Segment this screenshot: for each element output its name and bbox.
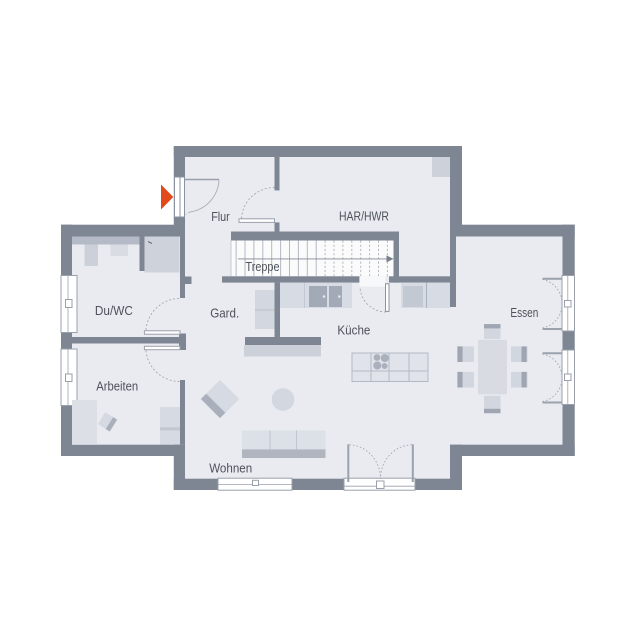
svg-text:Essen: Essen: [510, 306, 538, 320]
svg-text:Gard.: Gard.: [210, 306, 239, 320]
svg-text:Flur: Flur: [211, 210, 230, 224]
svg-text:HAR/HWR: HAR/HWR: [339, 210, 389, 224]
svg-text:Du/WC: Du/WC: [95, 304, 133, 318]
svg-text:Arbeiten: Arbeiten: [96, 380, 138, 394]
svg-text:Wohnen: Wohnen: [209, 462, 252, 476]
svg-text:Küche: Küche: [337, 324, 370, 338]
svg-text:Treppe: Treppe: [246, 260, 280, 274]
